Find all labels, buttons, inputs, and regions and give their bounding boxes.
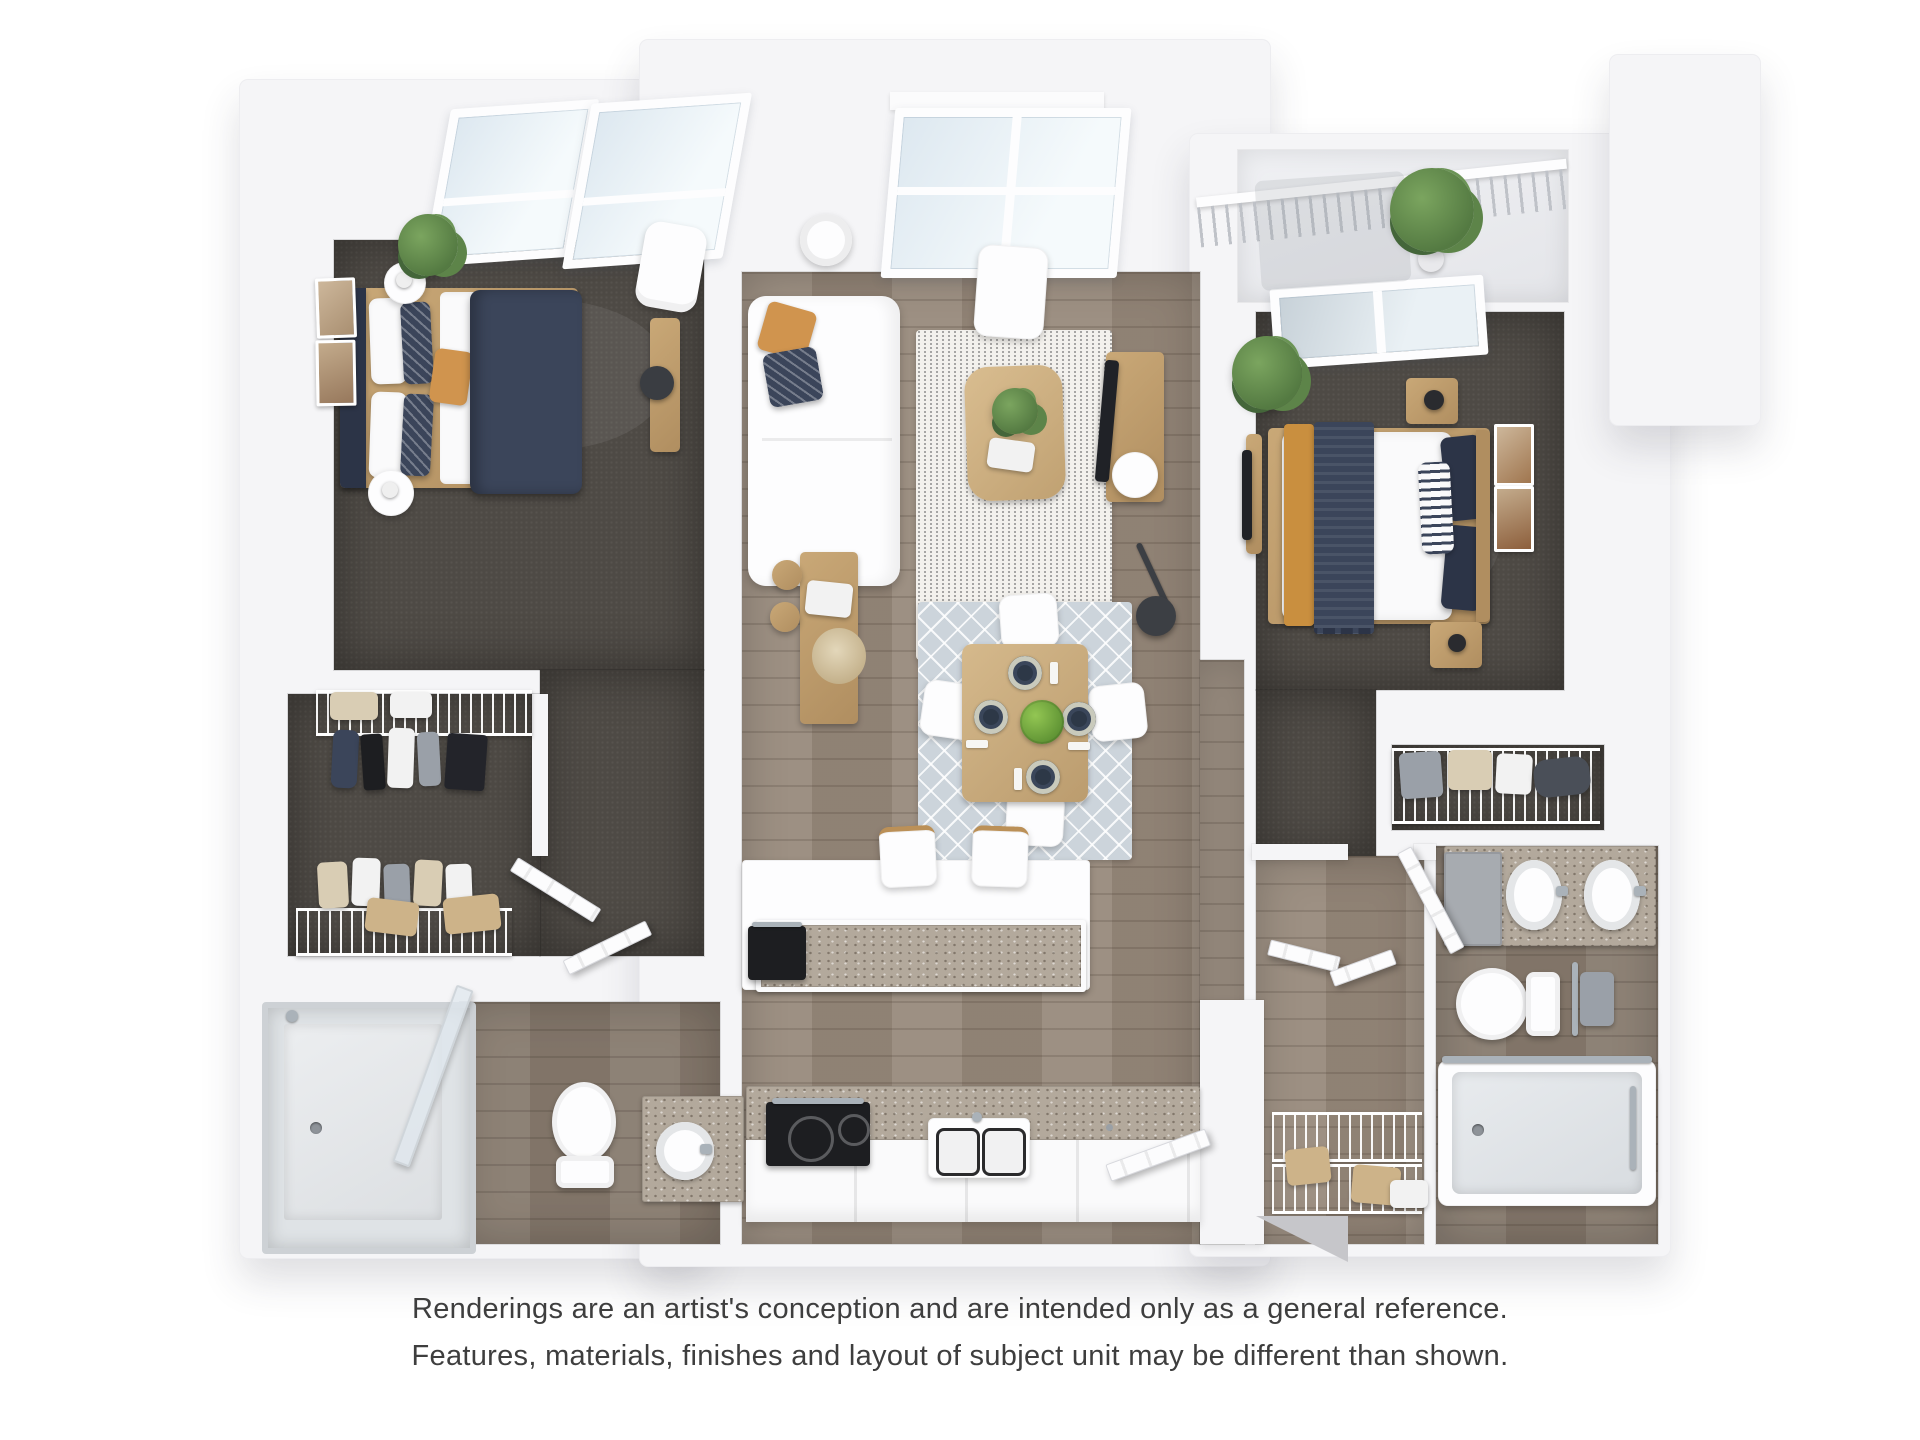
sink-basin-left bbox=[936, 1128, 980, 1176]
disclaimer-caption: Renderings are an artist's conception an… bbox=[0, 1286, 1920, 1380]
place-setting-plate bbox=[974, 700, 1008, 734]
closet1-hanging-garment bbox=[444, 733, 488, 792]
dining-chair-top bbox=[998, 592, 1060, 650]
sofa-cushion-seam bbox=[762, 438, 892, 441]
bed2-mustard-blanket bbox=[1284, 424, 1314, 626]
bathtub-towel-bar bbox=[1630, 1086, 1636, 1170]
wall-mass-upper-right bbox=[1610, 55, 1760, 425]
bed2-lamp-bottom bbox=[1448, 634, 1466, 652]
closet1-hanging-garment bbox=[387, 728, 415, 789]
coffee-table-book bbox=[986, 437, 1036, 473]
closet1-hanging-garment bbox=[331, 729, 360, 788]
linen-closet-duffel-bag bbox=[1532, 755, 1592, 799]
dining-chair-right bbox=[1087, 681, 1149, 743]
closet1-hanging-garment bbox=[413, 859, 443, 906]
bed2-striped-pillow bbox=[1418, 461, 1455, 555]
bedroom2-plant bbox=[1232, 336, 1302, 410]
place-setting-plate bbox=[1008, 656, 1042, 690]
closet1-hanging-garment bbox=[360, 733, 386, 790]
bathtub-glass-door-rail bbox=[1442, 1056, 1652, 1063]
bed1-lamp-bottom bbox=[382, 482, 398, 498]
place-setting-napkin bbox=[1050, 662, 1058, 684]
bedroom1-plant bbox=[398, 214, 458, 276]
bathroom1-toilet-bowl bbox=[552, 1082, 616, 1162]
living-drum-floor-lamp bbox=[800, 214, 852, 266]
sofa-navy-pattern-pillow bbox=[762, 346, 825, 409]
entry-column-wall bbox=[1200, 1000, 1264, 1244]
bathroom1-toilet-tank bbox=[556, 1156, 614, 1188]
shower-drain bbox=[310, 1122, 322, 1134]
bathroom1-faucet bbox=[700, 1144, 712, 1154]
dining-centerpiece-apples bbox=[1020, 700, 1064, 744]
entry-closet-storage-box bbox=[1390, 1180, 1428, 1208]
closet1-hanging-garment bbox=[317, 861, 349, 909]
living-side-table bbox=[1112, 452, 1158, 498]
cooktop-handle-rail bbox=[772, 1098, 864, 1104]
window-mullion bbox=[897, 187, 1116, 195]
cooktop-burner-large bbox=[788, 1116, 834, 1162]
closet1-right-wall bbox=[532, 694, 548, 856]
bathroom2-sink-right bbox=[1584, 860, 1640, 930]
wall-wood-disc-decor bbox=[770, 602, 800, 632]
balcony-palm-plant bbox=[1390, 168, 1474, 252]
bedroom2-wall-art bbox=[1494, 424, 1534, 486]
entry-closet-storage-box bbox=[1284, 1146, 1332, 1186]
bed2-navy-throw-fringe bbox=[1314, 422, 1374, 634]
cooktop-burner-small bbox=[838, 1114, 870, 1146]
closet1-storage-box bbox=[442, 893, 501, 935]
bathtub-drain bbox=[1472, 1124, 1484, 1136]
linen-closet-towels bbox=[1448, 750, 1492, 790]
bathroom2-toilet-bowl bbox=[1456, 968, 1528, 1040]
kitchen-faucet bbox=[972, 1112, 982, 1122]
place-setting-plate bbox=[1026, 760, 1060, 794]
place-setting-plate bbox=[1062, 702, 1096, 736]
bathroom2-toilet-tank bbox=[1526, 972, 1560, 1036]
disclaimer-line-2: Features, materials, finishes and layout… bbox=[0, 1333, 1920, 1380]
bedroom2-carpet-lower bbox=[1256, 690, 1376, 856]
bathroom2-towel bbox=[1580, 972, 1614, 1026]
sink-basin-right bbox=[982, 1128, 1026, 1176]
kitchen-bar-stool bbox=[878, 825, 937, 889]
closet1-storage-box bbox=[364, 897, 420, 937]
bedroom1-desk-chair bbox=[640, 366, 674, 400]
skylight-mullion bbox=[443, 190, 574, 207]
floor-plan-page: Renderings are an artist's conception an… bbox=[0, 0, 1920, 1440]
wall-wood-disc-decor bbox=[772, 560, 802, 590]
place-setting-napkin bbox=[1014, 768, 1022, 790]
bedroom1-wall-art bbox=[315, 340, 356, 407]
bed1-navy-duvet bbox=[470, 290, 582, 494]
linen-closet-bag bbox=[1398, 751, 1443, 800]
sideboard-dried-pampas bbox=[812, 628, 866, 684]
place-setting-napkin bbox=[1068, 742, 1090, 750]
bed1-lamp-top bbox=[396, 272, 412, 288]
bedroom1-wall-art bbox=[315, 277, 357, 338]
linen-closet-towels bbox=[1495, 753, 1533, 795]
entry-door-knob bbox=[1106, 1124, 1113, 1131]
bedroom1-corridor-carpet bbox=[540, 670, 704, 956]
bathroom2-faucet bbox=[1634, 886, 1646, 896]
skylight-mullion bbox=[582, 188, 726, 206]
window-mullion bbox=[1373, 291, 1386, 353]
place-setting-napkin bbox=[966, 740, 988, 748]
bedroom2-headboard bbox=[1476, 430, 1490, 622]
arc-lamp-shade bbox=[1136, 596, 1176, 636]
kitchen-bar-stool bbox=[971, 825, 1029, 888]
bathroom2-faucet bbox=[1556, 886, 1568, 896]
sideboard-art-book bbox=[804, 580, 853, 619]
bedroom2-wall-art bbox=[1494, 486, 1534, 552]
bedroom2-lower-wall-left bbox=[1252, 844, 1348, 860]
bedroom2-tv bbox=[1242, 450, 1252, 540]
disclaimer-line-1: Renderings are an artist's conception an… bbox=[0, 1286, 1920, 1333]
bathroom2-towel-rail bbox=[1572, 962, 1578, 1036]
island-black-appliance bbox=[748, 926, 806, 980]
bed1-navy-pattern-pillow bbox=[400, 301, 434, 384]
bedroom2-window bbox=[1269, 275, 1488, 370]
closet1-hanging-garment bbox=[417, 731, 442, 786]
bed2-lamp-top bbox=[1424, 390, 1444, 410]
bathroom2-sink-left bbox=[1506, 860, 1562, 930]
living-lounge-chair bbox=[973, 244, 1049, 341]
closet1-folded-clothes bbox=[390, 692, 432, 718]
closet1-folded-clothes bbox=[330, 692, 378, 720]
coffee-table-plant bbox=[992, 388, 1038, 434]
island-appliance-handle bbox=[752, 922, 802, 927]
bed1-navy-pattern-pillow bbox=[400, 393, 434, 476]
bed1-orange-pillow bbox=[428, 348, 473, 407]
balcony-glass-reflection bbox=[1254, 171, 1411, 291]
shower-head bbox=[286, 1010, 298, 1022]
